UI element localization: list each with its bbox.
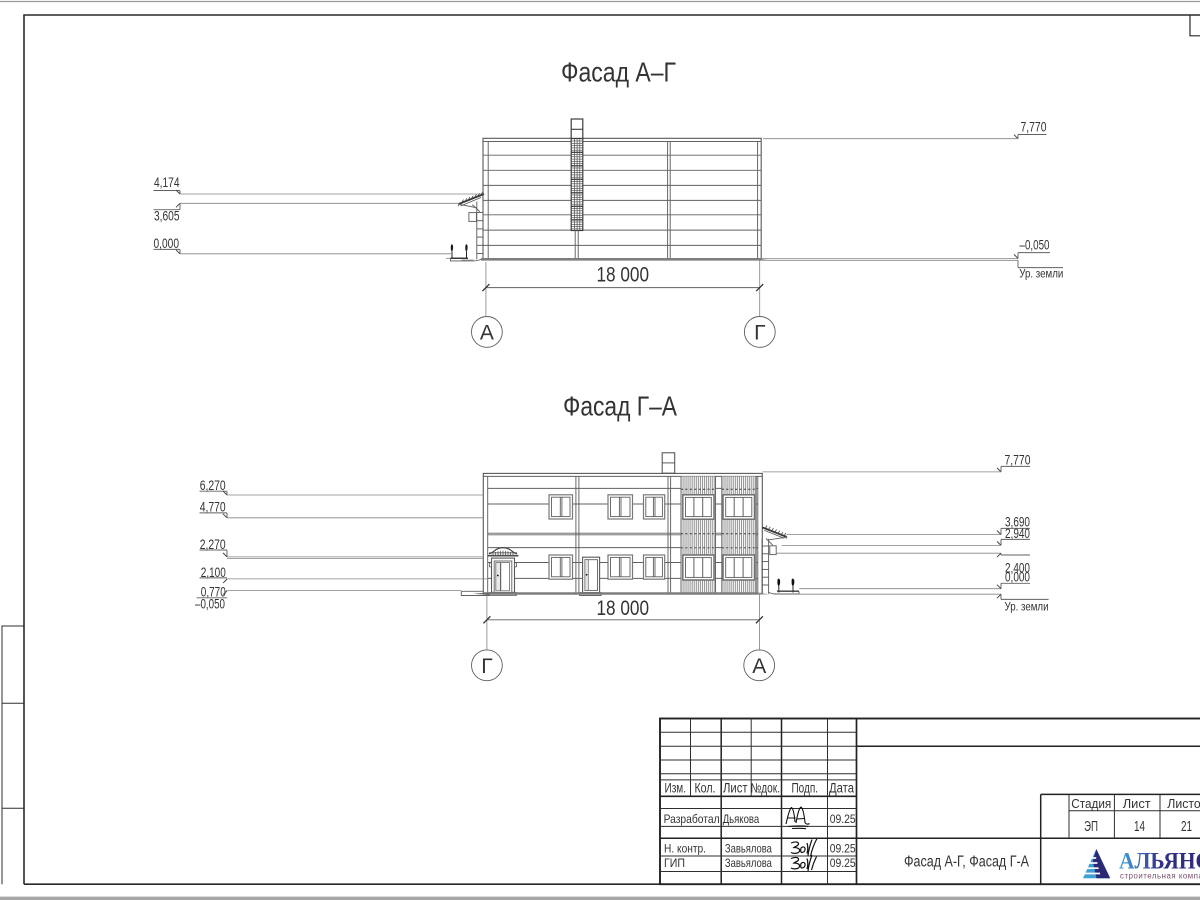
svg-text:Завьялова: Завьялова xyxy=(725,856,772,870)
svg-text:7,770: 7,770 xyxy=(1021,120,1047,135)
svg-text:Разработал: Разработал xyxy=(664,812,720,826)
svg-text:Стадия: Стадия xyxy=(1071,796,1111,811)
svg-text:Фасад А-Г, Фасад Г-А: Фасад А-Г, Фасад Г-А xyxy=(904,853,1030,870)
svg-text:7,770: 7,770 xyxy=(1005,453,1031,468)
svg-text:0,000: 0,000 xyxy=(154,236,180,251)
svg-text:–0,050: –0,050 xyxy=(195,596,225,611)
svg-text:Ур. земли: Ур. земли xyxy=(1019,266,1063,280)
svg-text:Подп.: Подп. xyxy=(792,780,819,795)
svg-text:14: 14 xyxy=(1134,818,1145,835)
svg-text:Листов: Листов xyxy=(1167,796,1200,811)
svg-text:09.25: 09.25 xyxy=(830,812,856,826)
svg-text:А: А xyxy=(480,322,494,345)
svg-text:Лист: Лист xyxy=(723,780,748,795)
svg-text:ЭП: ЭП xyxy=(1084,818,1098,835)
svg-text:Лист: Лист xyxy=(1123,796,1151,811)
svg-text:4,770: 4,770 xyxy=(200,500,226,515)
svg-text:Н. контр.: Н. контр. xyxy=(664,841,706,855)
svg-text:2,940: 2,940 xyxy=(1005,526,1030,541)
svg-text:строительная компания: строительная компания xyxy=(1120,872,1200,881)
svg-text:А: А xyxy=(752,655,766,678)
svg-text:Ур. земли: Ур. земли xyxy=(1005,600,1049,614)
svg-text:3,605: 3,605 xyxy=(154,209,180,224)
svg-text:Г: Г xyxy=(754,322,765,345)
svg-text:18 000: 18 000 xyxy=(597,264,650,287)
svg-text:Дата: Дата xyxy=(829,780,854,795)
svg-text:ГИП: ГИП xyxy=(664,856,685,870)
svg-text:09.25: 09.25 xyxy=(830,841,856,855)
svg-text:0,000: 0,000 xyxy=(1005,570,1030,585)
svg-text:18 000: 18 000 xyxy=(597,597,650,620)
svg-text:09.25: 09.25 xyxy=(830,856,856,870)
svg-text:Фасад Г–А: Фасад Г–А xyxy=(563,391,677,422)
svg-text:Г: Г xyxy=(481,655,492,678)
svg-text:Завьялова: Завьялова xyxy=(725,841,772,855)
svg-text:Дьякова: Дьякова xyxy=(723,812,760,826)
svg-text:Фасад А–Г: Фасад А–Г xyxy=(561,57,676,88)
svg-text:Кол.: Кол. xyxy=(695,780,716,795)
svg-text:4,174: 4,174 xyxy=(154,175,180,190)
svg-text:№док.: №док. xyxy=(751,780,781,795)
svg-text:–0,050: –0,050 xyxy=(1020,238,1050,253)
svg-text:Изм.: Изм. xyxy=(665,780,687,795)
svg-text:21: 21 xyxy=(1181,818,1192,835)
